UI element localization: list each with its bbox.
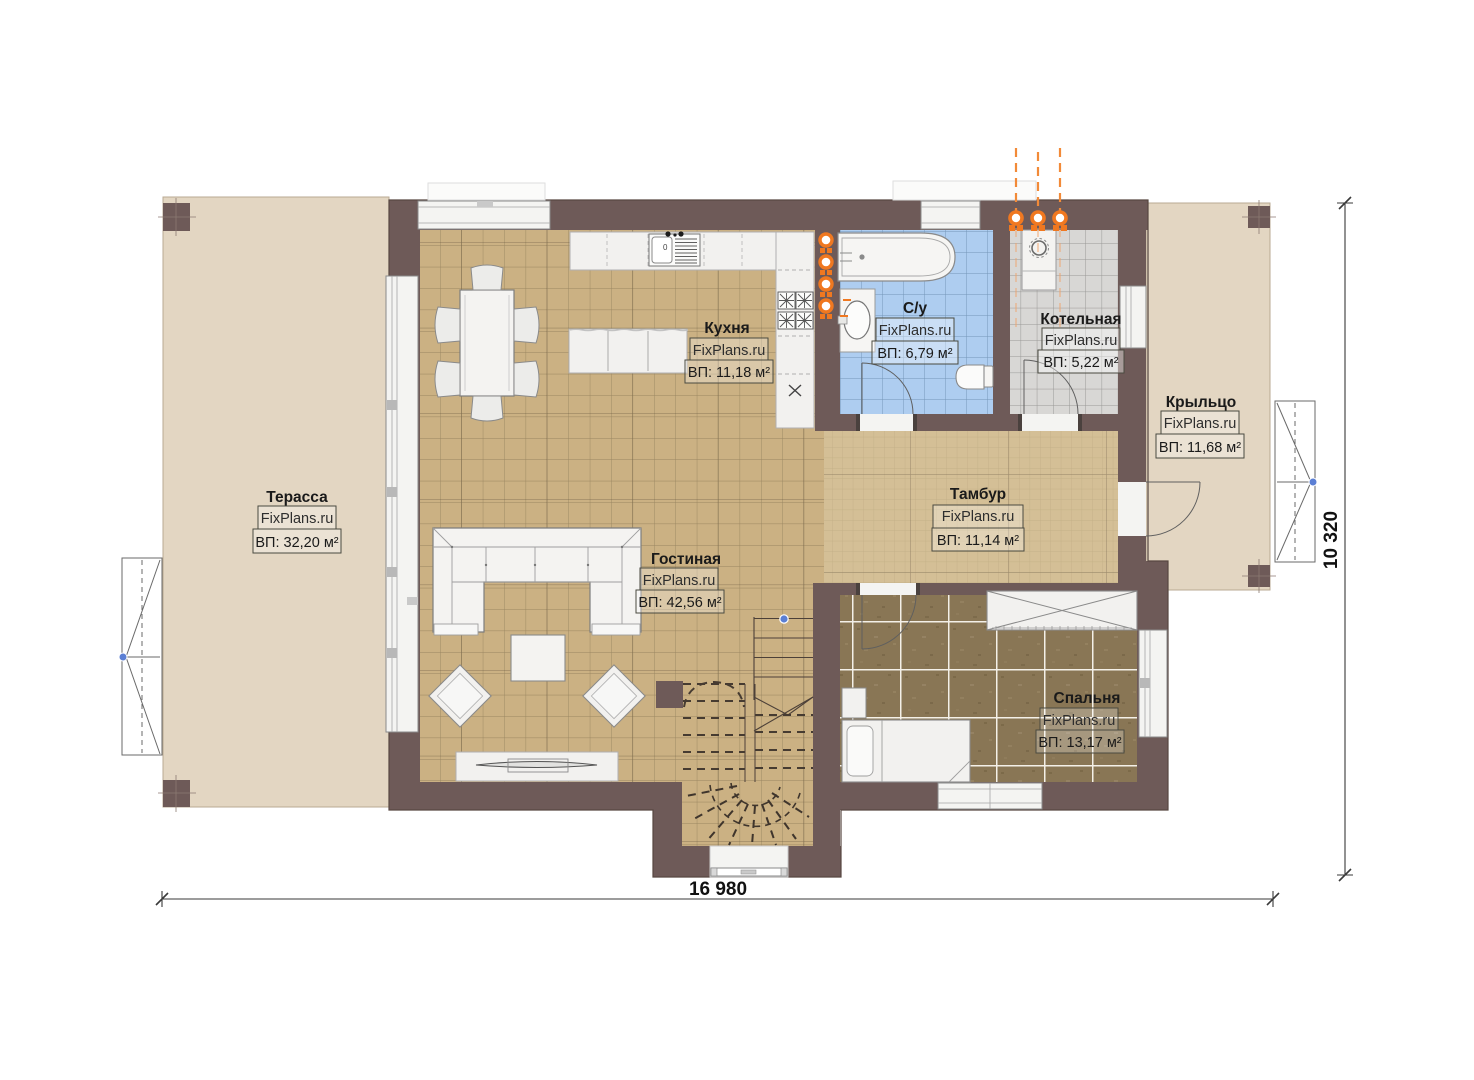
- svg-text:FixPlans.ru: FixPlans.ru: [261, 511, 334, 527]
- svg-text:FixPlans.ru: FixPlans.ru: [1043, 713, 1116, 729]
- svg-text:ВП: 6,79 м²: ВП: 6,79 м²: [877, 346, 952, 362]
- svg-text:FixPlans.ru: FixPlans.ru: [942, 509, 1015, 525]
- svg-text:ВП: 11,14 м²: ВП: 11,14 м²: [937, 533, 1019, 549]
- svg-text:Тамбур: Тамбур: [950, 486, 1006, 503]
- svg-text:FixPlans.ru: FixPlans.ru: [643, 573, 716, 589]
- svg-text:ВП: 11,68 м²: ВП: 11,68 м²: [1159, 440, 1241, 456]
- svg-text:FixPlans.ru: FixPlans.ru: [1164, 416, 1237, 432]
- svg-text:10 320: 10 320: [1321, 511, 1342, 569]
- svg-text:ВП: 13,17 м²: ВП: 13,17 м²: [1038, 735, 1121, 751]
- svg-text:ВП: 42,56 м²: ВП: 42,56 м²: [638, 595, 721, 611]
- svg-text:FixPlans.ru: FixPlans.ru: [879, 323, 952, 339]
- svg-text:Котельная: Котельная: [1040, 311, 1121, 328]
- svg-text:С/у: С/у: [903, 300, 928, 317]
- svg-text:ВП: 5,22 м²: ВП: 5,22 м²: [1043, 355, 1118, 371]
- svg-text:Крыльцо: Крыльцо: [1166, 394, 1237, 411]
- svg-text:ВП: 32,20 м²: ВП: 32,20 м²: [255, 535, 338, 551]
- svg-text:Терасса: Терасса: [266, 489, 328, 506]
- svg-text:ВП: 11,18 м²: ВП: 11,18 м²: [688, 365, 770, 381]
- svg-text:FixPlans.ru: FixPlans.ru: [693, 343, 766, 359]
- svg-text:Гостиная: Гостиная: [651, 551, 721, 568]
- svg-text:Спальня: Спальня: [1054, 690, 1121, 707]
- svg-text:Кухня: Кухня: [704, 320, 749, 337]
- svg-text:0: 0: [663, 243, 668, 252]
- svg-text:16 980: 16 980: [689, 879, 747, 900]
- svg-text:FixPlans.ru: FixPlans.ru: [1045, 333, 1118, 349]
